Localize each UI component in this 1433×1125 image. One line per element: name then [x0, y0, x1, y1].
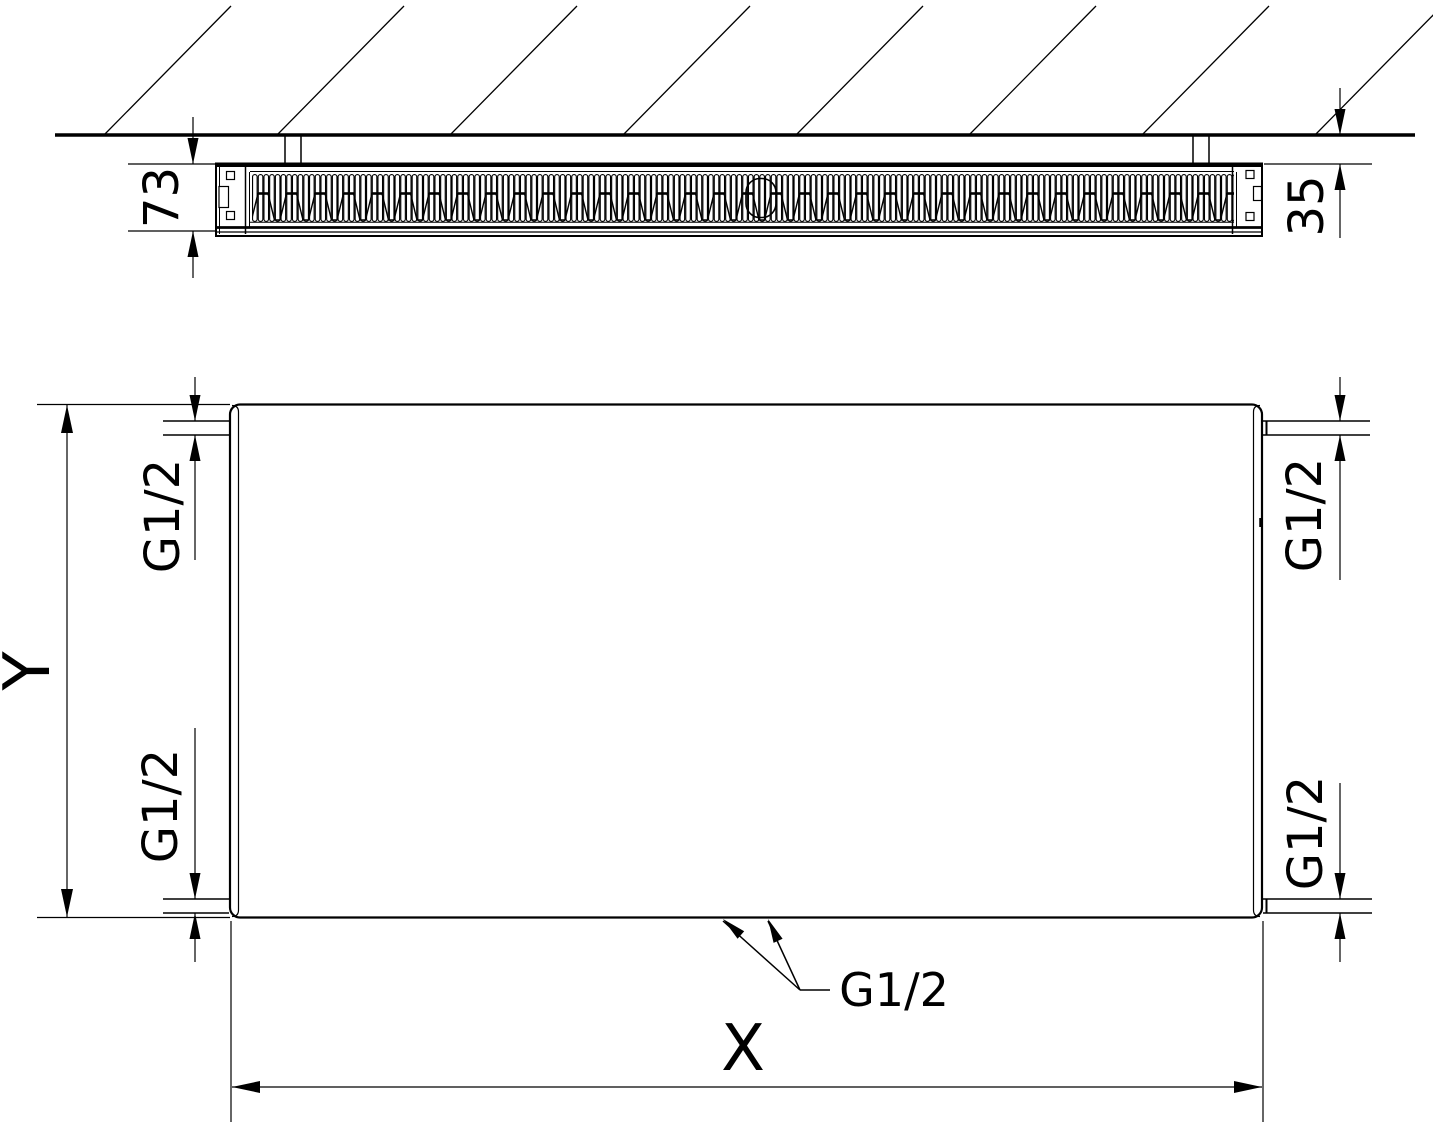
front-view: Y G1/2 G1/2 G1/2 — [0, 377, 1372, 1122]
connection-label-bottom-right: G1/2 — [1278, 776, 1334, 890]
connection-stub-bottom-left — [163, 899, 229, 913]
arrowhead-icon — [190, 395, 201, 421]
arrowhead-icon — [188, 138, 199, 164]
width-dimension-label: X — [721, 1012, 765, 1086]
arrowhead-icon — [768, 919, 783, 943]
arrowhead-icon — [1234, 1081, 1262, 1093]
radiator-front-panel — [230, 405, 1262, 918]
wall-hatching — [104, 6, 1433, 135]
arrowhead-icon — [188, 231, 199, 257]
arrowhead-icon — [1335, 435, 1346, 461]
dimension-width-x: X — [231, 921, 1263, 1122]
arrowhead-icon — [1335, 873, 1346, 899]
top-view: 73 35 — [55, 6, 1433, 278]
dimension-wall-clearance-35: 35 — [1264, 88, 1372, 238]
connection-label-top-right: G1/2 — [1277, 458, 1333, 572]
height-dimension-label: Y — [0, 651, 65, 692]
connection-label-bottom-left: G1/2 — [133, 749, 189, 863]
connection-stub-bottom-right — [1263, 899, 1372, 913]
dimension-g12-bottom-right: G1/2 — [1278, 776, 1346, 962]
depth-dimension-label: 73 — [134, 167, 190, 228]
technical-drawing-radiator: 73 35 — [0, 0, 1433, 1125]
dimension-g12-top-left: G1/2 — [135, 377, 201, 573]
arrowhead-icon — [190, 873, 201, 899]
convector-fins — [252, 174, 1234, 222]
arrowhead-icon — [1335, 395, 1346, 421]
arrowhead-icon — [1335, 164, 1346, 190]
connection-label-top-left: G1/2 — [135, 459, 191, 573]
arrowhead-icon — [1335, 109, 1346, 135]
arrowhead-icon — [1335, 913, 1346, 939]
arrowhead-icon — [232, 1081, 260, 1093]
leader-g12-bottom-center: G1/2 — [723, 919, 949, 1017]
wall-bracket-right — [1193, 135, 1209, 164]
wall-bracket-left — [285, 135, 301, 164]
arrowhead-icon — [190, 435, 201, 461]
connection-label-bottom-center: G1/2 — [839, 963, 949, 1017]
arrowhead-icon — [723, 919, 744, 939]
dimension-g12-top-right: G1/2 — [1277, 377, 1346, 580]
dimension-depth-73: 73 — [128, 117, 216, 278]
connection-stub-top-right — [1263, 421, 1370, 435]
arrowhead-icon — [61, 405, 73, 433]
radiator-top-view — [216, 164, 1262, 237]
dimension-g12-bottom-left: G1/2 — [133, 728, 201, 962]
wall-clearance-dimension-label: 35 — [1279, 175, 1335, 236]
arrowhead-icon — [61, 889, 73, 917]
connection-stub-top-left — [163, 421, 229, 435]
